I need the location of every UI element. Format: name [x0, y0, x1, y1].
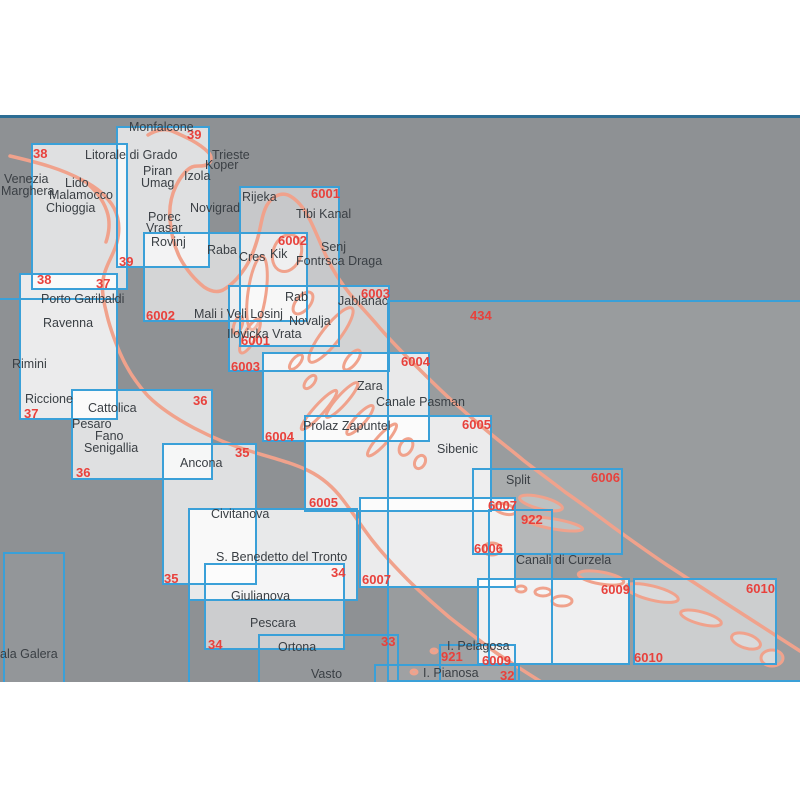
chart-number-label: 6001 — [311, 186, 340, 201]
place-name-label: Mali i Veli Losinj — [194, 307, 283, 321]
chart-number-label: 36 — [193, 393, 207, 408]
place-name-label: Litorale di Grado — [85, 148, 177, 162]
place-name-label: Cattolica — [88, 401, 137, 415]
place-name-label: Vasto — [311, 667, 342, 681]
chart-number-label: 6006 — [591, 470, 620, 485]
chart-rect-38[interactable] — [31, 143, 128, 290]
chart-number-label: 434 — [470, 308, 492, 323]
place-name-label: Kik — [270, 247, 287, 261]
chart-number-label: 6010 — [746, 581, 775, 596]
place-name-label: Sibenic — [437, 442, 478, 456]
place-name-label: Novalja — [289, 314, 331, 328]
chart-rect-partial-left[interactable] — [3, 552, 65, 682]
place-name-label: Ortona — [278, 640, 316, 654]
chart-number-label: 34 — [208, 637, 222, 652]
place-name-label: Split — [506, 473, 530, 487]
place-name-label: S. Benedetto del Tronto — [216, 550, 347, 564]
map-canvas: 3839600160023938376003434600260016004600… — [0, 118, 800, 682]
place-name-label: Rijeka — [242, 190, 277, 204]
place-name-label: Vrasar — [146, 221, 182, 235]
place-name-label: Umag — [141, 176, 174, 190]
chart-number-label: 6006 — [474, 541, 503, 556]
place-name-label: Pescara — [250, 616, 296, 630]
place-name-label: I. Pianosa — [423, 666, 479, 680]
place-name-label: Ancona — [180, 456, 222, 470]
place-name-label: Malamocco — [49, 188, 113, 202]
place-name-label: Jablanac — [338, 294, 388, 308]
chart-number-label: 37 — [96, 276, 110, 291]
chart-number-label: 6004 — [401, 354, 430, 369]
chart-number-label: 6009 — [601, 582, 630, 597]
place-name-label: Chioggia — [46, 201, 95, 215]
place-name-label: Rovinj — [151, 235, 186, 249]
chart-number-label: 38 — [37, 272, 51, 287]
place-name-label: Raba — [207, 243, 237, 257]
place-name-label: Porto Garibaldi — [41, 292, 124, 306]
chart-number-label: 38 — [33, 146, 47, 161]
bottom-margin-band — [0, 682, 800, 800]
place-name-label: Ilovicka Vrata — [227, 327, 302, 341]
place-name-label: Canali di Curzela — [516, 553, 611, 567]
place-name-label: Tibi Kanal — [296, 207, 351, 221]
place-name-label: ala Galera — [0, 647, 58, 661]
place-name-label: Ravenna — [43, 316, 93, 330]
place-name-label: Cres — [239, 250, 265, 264]
chart-number-label: 6002 — [146, 308, 175, 323]
place-name-label: Zara — [357, 379, 383, 393]
chart-number-label: 35 — [164, 571, 178, 586]
chart-index-map-page: 3839600160023938376003434600260016004600… — [0, 0, 800, 800]
place-name-label: Monfalcone — [129, 120, 194, 134]
chart-number-label: 6002 — [278, 233, 307, 248]
place-name-label: Civitanova — [211, 507, 269, 521]
place-name-label: I. Pelagosa — [447, 639, 510, 653]
chart-number-label: 6003 — [231, 359, 260, 374]
place-name-label: Rimini — [12, 357, 47, 371]
chart-number-label: 36 — [76, 465, 90, 480]
chart-number-label: 35 — [235, 445, 249, 460]
chart-number-label: 34 — [331, 565, 345, 580]
place-name-label: Riccione — [25, 392, 73, 406]
chart-number-label: 6009 — [482, 653, 511, 668]
chart-number-label: 6005 — [462, 417, 491, 432]
place-name-label: Prolaz Zapuntel — [303, 419, 391, 433]
chart-number-label: 39 — [119, 254, 133, 269]
chart-number-label: 32 — [500, 668, 514, 682]
chart-number-label: 37 — [24, 406, 38, 421]
place-name-label: Novigrad — [190, 201, 240, 215]
chart-number-label: 922 — [521, 512, 543, 527]
chart-number-label: 33 — [381, 634, 395, 649]
place-name-label: Izola — [184, 169, 210, 183]
place-name-label: Canale Pasman — [376, 395, 465, 409]
place-name-label: Senigallia — [84, 441, 138, 455]
chart-number-label: 6010 — [634, 650, 663, 665]
place-name-label: Fontrsca Draga — [296, 254, 382, 268]
chart-number-label: 6007 — [488, 498, 517, 513]
chart-number-label: 6004 — [265, 429, 294, 444]
place-name-label: Senj — [321, 240, 346, 254]
place-name-label: Rab — [285, 290, 308, 304]
place-name-label: Giulianova — [231, 589, 290, 603]
chart-number-label: 6007 — [362, 572, 391, 587]
top-margin-band — [0, 0, 800, 115]
chart-number-label: 6005 — [309, 495, 338, 510]
place-name-label: Marghera — [1, 184, 55, 198]
partial-chart-edge — [188, 601, 190, 682]
